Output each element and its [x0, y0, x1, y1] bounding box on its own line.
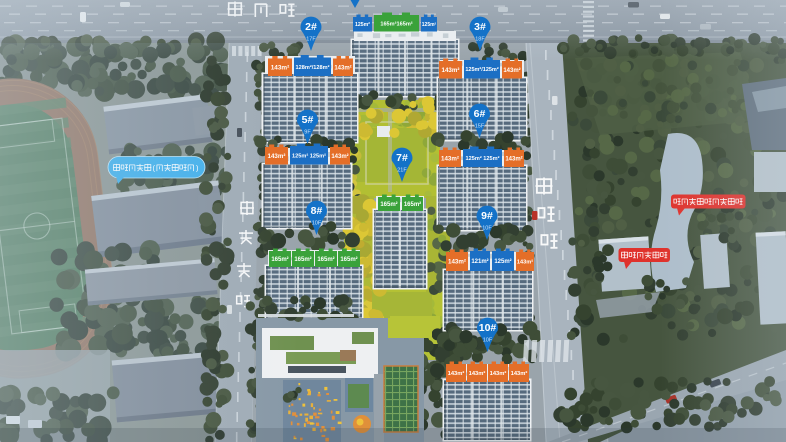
svg-text:143m²: 143m² [331, 153, 348, 160]
svg-text:9#: 9# [481, 210, 493, 222]
svg-text:143m²: 143m² [469, 370, 486, 377]
svg-text:10F: 10F [483, 338, 493, 344]
svg-text:18F: 18F [475, 37, 485, 43]
svg-text:10#: 10# [479, 322, 497, 334]
svg-text:165m²: 165m² [271, 256, 288, 263]
svg-text:5#: 5# [302, 114, 314, 126]
svg-text:165m²: 165m² [340, 256, 357, 263]
svg-text:2#: 2# [305, 21, 317, 33]
svg-text:143m²: 143m² [441, 156, 459, 163]
svg-text:6#: 6# [474, 108, 486, 120]
svg-text:125m²: 125m² [494, 258, 511, 265]
svg-text:143m²: 143m² [448, 370, 465, 377]
svg-text:121m²: 121m² [471, 258, 488, 265]
svg-text:143m²: 143m² [511, 370, 528, 377]
svg-text:9F: 9F [304, 130, 311, 136]
svg-text:143m²: 143m² [490, 370, 507, 377]
svg-text:7#: 7# [396, 152, 408, 164]
svg-text:125m²: 125m² [355, 22, 370, 28]
svg-text:10F: 10F [482, 226, 492, 232]
svg-text:143m²: 143m² [505, 156, 522, 163]
svg-text:21F: 21F [397, 168, 407, 174]
svg-text:165m²: 165m² [317, 256, 334, 263]
svg-text:143m²: 143m² [442, 67, 460, 74]
svg-text:165m²: 165m² [380, 201, 397, 208]
svg-text:165m²: 165m² [404, 201, 421, 208]
svg-text:125m²: 125m² [422, 22, 437, 28]
svg-text:143m²: 143m² [517, 259, 533, 266]
svg-text:8#: 8# [311, 205, 323, 217]
svg-text:10F: 10F [312, 221, 322, 227]
svg-text:15F: 15F [475, 124, 485, 130]
svg-text:125m² 125m²: 125m² 125m² [292, 152, 326, 159]
svg-text:17F: 17F [306, 37, 316, 43]
svg-text:165m²: 165m² [294, 256, 311, 263]
svg-text:143m²: 143m² [448, 259, 466, 266]
svg-text:128m²/128m²: 128m²/128m² [296, 64, 330, 71]
svg-text:143m²: 143m² [271, 65, 289, 72]
svg-text:125m² 125m²: 125m² 125m² [466, 155, 500, 162]
svg-text:143m²: 143m² [503, 67, 520, 74]
svg-text:3#: 3# [474, 21, 486, 33]
svg-text:165m²165m²: 165m²165m² [380, 20, 412, 27]
svg-text:143m²: 143m² [334, 64, 351, 71]
svg-text:125m²/125m²: 125m²/125m² [465, 66, 498, 73]
svg-text:143m²: 143m² [268, 153, 286, 160]
